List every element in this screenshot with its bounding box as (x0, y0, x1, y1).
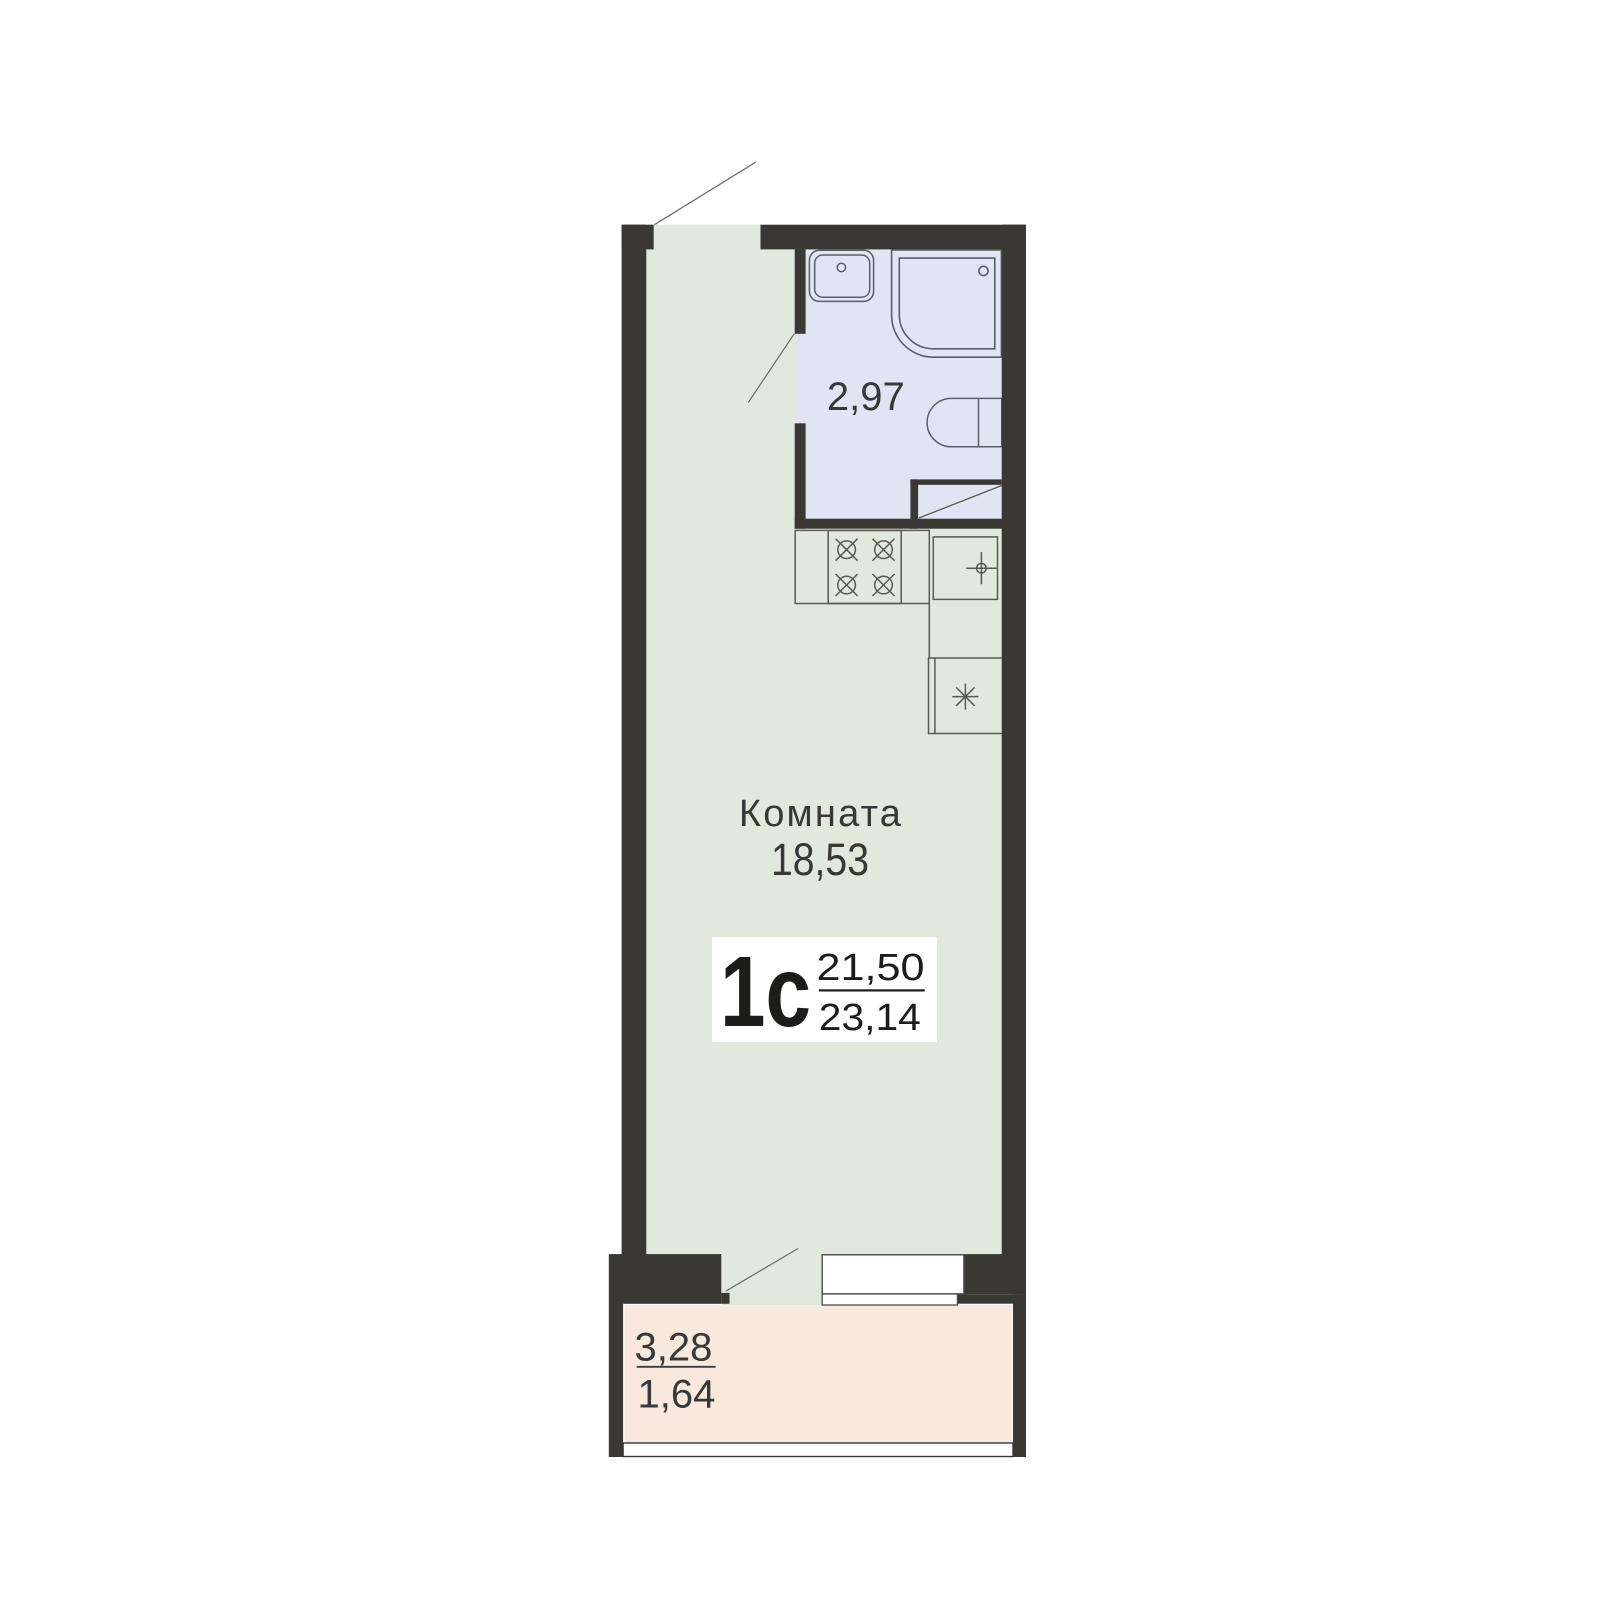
svg-text:1,64: 1,64 (638, 1373, 716, 1417)
svg-text:3,28: 3,28 (635, 1326, 713, 1370)
svg-text:18,53: 18,53 (771, 834, 869, 885)
svg-text:1с: 1с (720, 936, 811, 1048)
svg-text:23,14: 23,14 (819, 997, 921, 1039)
svg-text:2,97: 2,97 (827, 375, 905, 419)
svg-text:21,50: 21,50 (817, 947, 925, 989)
svg-text:Комната: Комната (739, 793, 903, 835)
